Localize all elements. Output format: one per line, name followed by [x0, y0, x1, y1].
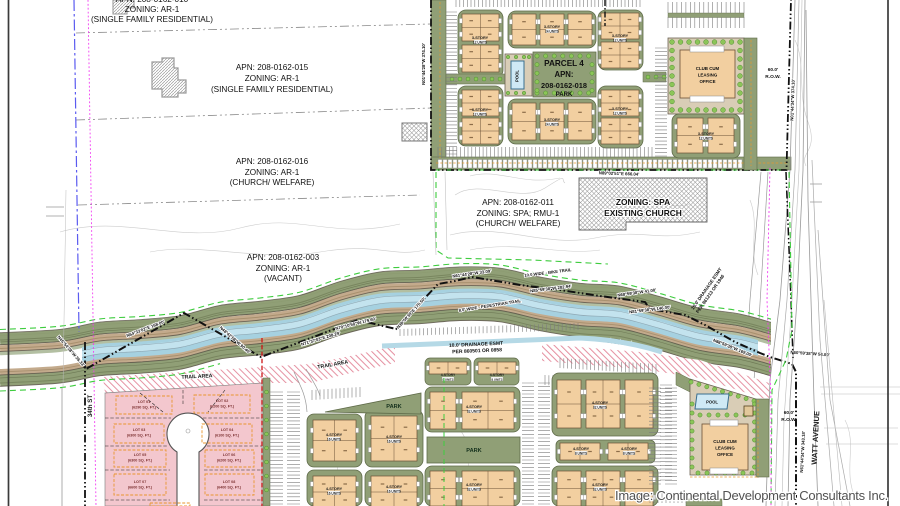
svg-text:ZONING: SPA; RMU-1: ZONING: SPA; RMU-1: [477, 209, 560, 218]
svg-text:N01°44'28"W 374.10': N01°44'28"W 374.10': [421, 43, 426, 85]
svg-text:OFFICE: OFFICE: [717, 452, 733, 457]
svg-text:LOT 07: LOT 07: [134, 480, 147, 484]
svg-text:CLUB CUM: CLUB CUM: [713, 439, 737, 444]
svg-text:ZONING: AR-1: ZONING: AR-1: [245, 168, 300, 177]
svg-text:32 UNITS: 32 UNITS: [593, 487, 608, 491]
svg-text:4-STORY: 4-STORY: [441, 373, 456, 377]
svg-text:LOT 05: LOT 05: [134, 453, 147, 457]
svg-text:12 UNITS: 12 UNITS: [473, 40, 488, 44]
svg-text:(6300 SQ. FT.): (6300 SQ. FT.): [127, 434, 152, 438]
svg-text:60.0': 60.0': [784, 410, 794, 416]
svg-text:(CHURCH/ WELFARE): (CHURCH/ WELFARE): [476, 219, 561, 228]
svg-text:3-STORY: 3-STORY: [544, 118, 561, 122]
svg-text:4-STORY: 4-STORY: [621, 447, 638, 451]
svg-text:ZONING: AR-1: ZONING: AR-1: [125, 5, 180, 14]
svg-text:PARK: PARK: [556, 92, 573, 98]
svg-text:4-STORY: 4-STORY: [573, 447, 590, 451]
svg-text:3-STORY: 3-STORY: [612, 34, 629, 38]
svg-text:POOL: POOL: [706, 400, 718, 405]
svg-text:32 UNITS: 32 UNITS: [467, 487, 482, 491]
svg-text:4-STORY: 4-STORY: [466, 483, 483, 487]
svg-text:24 UNITS: 24 UNITS: [545, 122, 560, 126]
svg-text:LOT 01: LOT 01: [138, 400, 151, 404]
svg-text:(CHURCH/ WELFARE): (CHURCH/ WELFARE): [230, 178, 315, 187]
svg-text:8 UNITS: 8 UNITS: [491, 377, 502, 381]
svg-text:(6200 SQ. FT.): (6200 SQ. FT.): [210, 405, 235, 409]
svg-text:LEASING: LEASING: [698, 73, 718, 78]
svg-text:EXISTING CHURCH: EXISTING CHURCH: [604, 208, 682, 218]
svg-text:12 UNITS: 12 UNITS: [473, 112, 488, 116]
svg-text:PARCEL 4: PARCEL 4: [544, 59, 584, 68]
svg-text:32 UNITS: 32 UNITS: [593, 405, 608, 409]
svg-text:4-STORY: 4-STORY: [592, 483, 609, 487]
svg-text:ZONING: AR-1: ZONING: AR-1: [245, 74, 300, 83]
svg-text:60.0': 60.0': [768, 67, 778, 73]
svg-text:3-STORY: 3-STORY: [612, 107, 629, 111]
svg-text:8 UNITS: 8 UNITS: [575, 451, 588, 455]
svg-text:16 UNITS: 16 UNITS: [327, 437, 342, 441]
svg-text:(6200 SQ. FT.): (6200 SQ. FT.): [217, 459, 242, 463]
svg-text:16 UNITS: 16 UNITS: [327, 491, 342, 495]
svg-text:(6100 SQ. FT.): (6100 SQ. FT.): [215, 434, 240, 438]
svg-text:R.O.W.: R.O.W.: [765, 74, 780, 80]
svg-text:16 UNITS: 16 UNITS: [387, 439, 402, 443]
svg-text:(SINGLE FAMILY RESIDENTIAL): (SINGLE FAMILY RESIDENTIAL): [211, 85, 333, 94]
svg-text:LOT 02: LOT 02: [216, 399, 229, 403]
svg-text:OFFICE: OFFICE: [699, 79, 715, 84]
svg-text:16 UNITS: 16 UNITS: [387, 489, 402, 493]
svg-text:ZONING: AR-1: ZONING: AR-1: [256, 264, 311, 273]
svg-text:8 UNITS: 8 UNITS: [623, 451, 636, 455]
svg-text:4-STORY: 4-STORY: [466, 405, 483, 409]
svg-text:(6600 SQ. FT.): (6600 SQ. FT.): [128, 486, 153, 490]
svg-text:PARK: PARK: [466, 448, 481, 454]
svg-text:PARK: PARK: [386, 404, 401, 410]
svg-text:(6290 SQ. FT.): (6290 SQ. FT.): [132, 406, 157, 410]
svg-text:LOT 08: LOT 08: [223, 480, 236, 484]
svg-text:4-STORY: 4-STORY: [490, 373, 505, 377]
svg-text:12 UNITS: 12 UNITS: [613, 111, 628, 115]
svg-text:LOT 06: LOT 06: [223, 453, 236, 457]
svg-text:LEASING: LEASING: [715, 446, 735, 451]
svg-text:LOT 03: LOT 03: [133, 428, 146, 432]
svg-text:4-STORY: 4-STORY: [326, 487, 343, 491]
svg-text:R.O.W.: R.O.W.: [781, 417, 796, 423]
svg-text:4-STORY: 4-STORY: [592, 401, 609, 405]
svg-text:APN: 208-0162-003: APN: 208-0162-003: [247, 253, 320, 262]
svg-text:3-STORY: 3-STORY: [698, 132, 715, 136]
svg-text:(6300 SQ. FT.): (6300 SQ. FT.): [128, 459, 153, 463]
svg-text:APN: 208-0162-010: APN: 208-0162-010: [116, 0, 189, 4]
svg-text:Image: Continental Development: Image: Continental Development Consultan…: [615, 488, 888, 503]
svg-text:APN: 208-0162-015: APN: 208-0162-015: [236, 63, 309, 72]
svg-text:ZONING: SPA: ZONING: SPA: [616, 197, 670, 207]
svg-text:3-STORY: 3-STORY: [472, 108, 489, 112]
svg-text:(VACANT): (VACANT): [264, 274, 302, 283]
svg-text:12 UNITS: 12 UNITS: [613, 38, 628, 42]
svg-text:4-STORY: 4-STORY: [386, 435, 403, 439]
svg-text:APN: 208-0162-011: APN: 208-0162-011: [482, 198, 554, 207]
svg-text:(6400 SQ. FT.): (6400 SQ. FT.): [217, 486, 242, 490]
svg-text:32 UNITS: 32 UNITS: [467, 409, 482, 413]
svg-text:3-STORY: 3-STORY: [544, 25, 561, 29]
svg-text:(SINGLE FAMILY RESIDENTIAL): (SINGLE FAMILY RESIDENTIAL): [91, 15, 213, 24]
svg-text:LOT 04: LOT 04: [221, 428, 234, 432]
svg-text:CLUB CUM: CLUB CUM: [696, 66, 720, 71]
svg-text:4-STORY: 4-STORY: [386, 485, 403, 489]
svg-text:34th ST: 34th ST: [87, 395, 94, 418]
svg-text:24 UNITS: 24 UNITS: [545, 29, 560, 33]
svg-text:POOL: POOL: [515, 70, 520, 82]
svg-text:APN: 208-0162-016: APN: 208-0162-016: [236, 157, 309, 166]
svg-text:3-STORY: 3-STORY: [472, 36, 489, 40]
svg-text:APN:: APN:: [554, 70, 573, 79]
svg-text:4-STORY: 4-STORY: [326, 433, 343, 437]
svg-text:12 UNITS: 12 UNITS: [699, 136, 714, 140]
svg-text:208-0162-018: 208-0162-018: [541, 81, 587, 90]
